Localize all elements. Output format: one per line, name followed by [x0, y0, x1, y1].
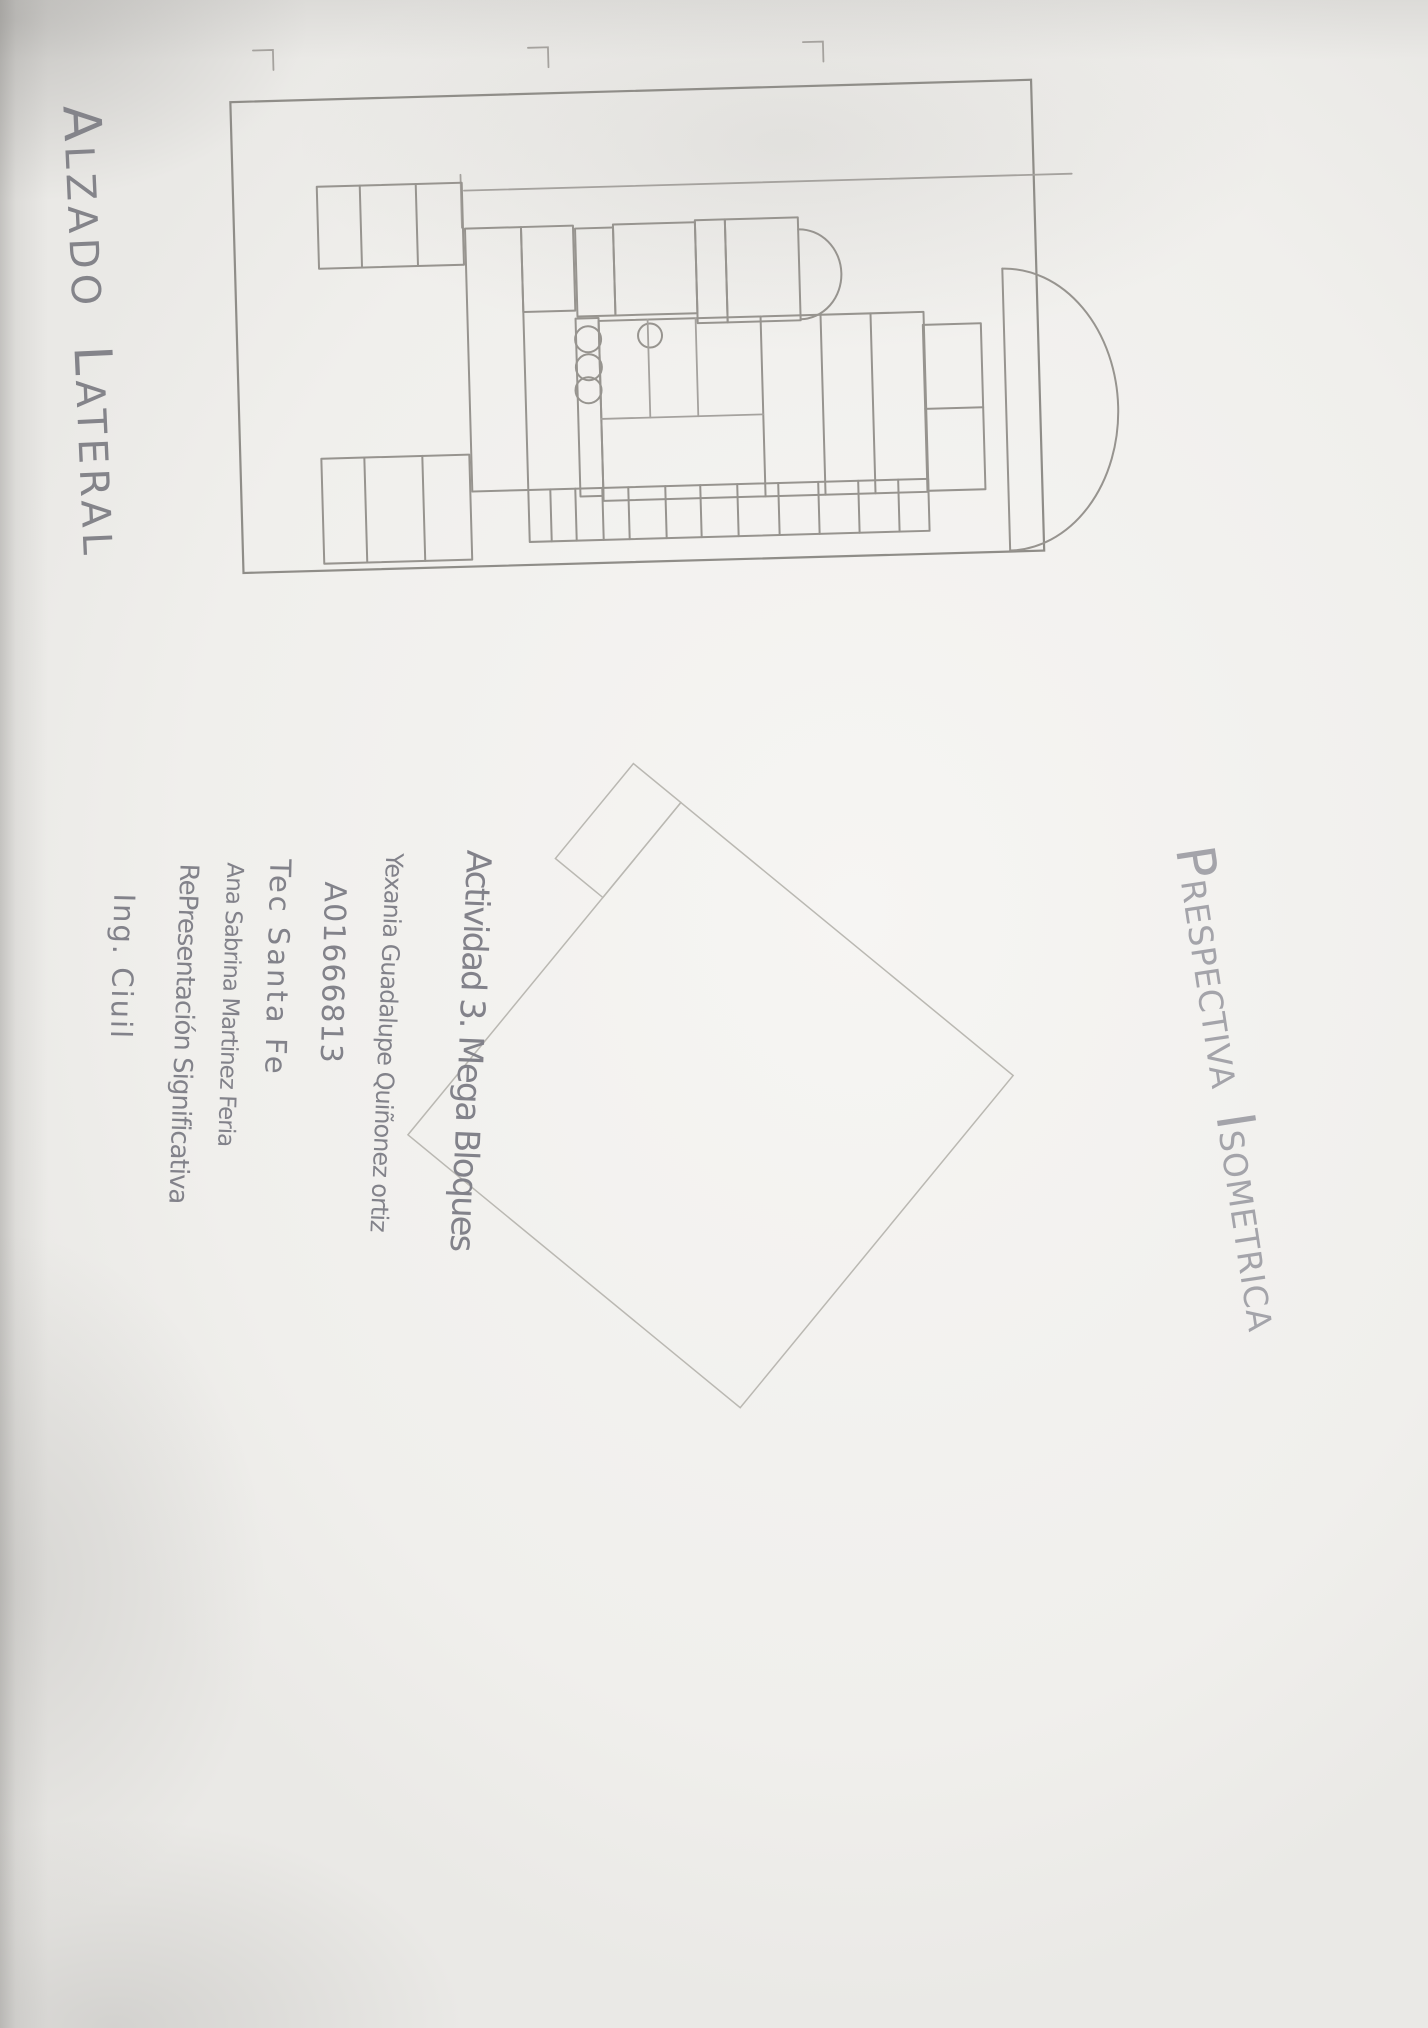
- dome-small: [798, 228, 842, 319]
- block: [575, 228, 615, 317]
- leg-left: [317, 183, 464, 269]
- plate-divider: [700, 485, 701, 537]
- block-divider: [648, 320, 651, 418]
- title-initial: A: [50, 104, 112, 147]
- plate-divider: [575, 489, 576, 541]
- info-line-campus: Tec Santa Fe: [258, 859, 297, 1077]
- photographed-paper-sheet: ALZADO LATERAL PRESPECTIVA ISOMETRICA Ac…: [0, 0, 1428, 2028]
- plate-divider: [778, 483, 779, 535]
- block: [528, 479, 929, 542]
- plate-divider: [858, 481, 859, 533]
- plate-divider: [898, 480, 899, 532]
- block-divider: [821, 315, 826, 495]
- block-divider: [364, 458, 367, 563]
- plate-divider: [737, 484, 738, 536]
- right-plate-column: [528, 479, 929, 542]
- info-line-studentid: A01666813: [313, 881, 352, 1064]
- block-divider: [696, 318, 699, 416]
- iso-grid-main: [408, 803, 1013, 1408]
- slab-block: [465, 227, 528, 491]
- dome-large: [1002, 266, 1122, 551]
- info-line-degree: Ing. Ciuil: [104, 893, 142, 1040]
- block-divider: [422, 456, 425, 561]
- center-column: [599, 312, 929, 501]
- stud-circle: [575, 326, 602, 353]
- plate-block: [695, 219, 728, 323]
- block: [613, 222, 698, 315]
- block-divider: [601, 414, 763, 419]
- block-divider: [416, 184, 418, 266]
- block: [725, 217, 801, 322]
- bridge-plate: [574, 316, 667, 496]
- block: [321, 455, 472, 564]
- tower-top: [921, 266, 1122, 553]
- block: [521, 226, 575, 312]
- block-divider: [761, 316, 766, 496]
- block-divider: [925, 407, 983, 409]
- block: [317, 183, 464, 269]
- block-divider: [360, 186, 362, 268]
- corner-mark: [253, 50, 274, 71]
- corner-marks: [253, 35, 824, 78]
- plate-divider: [665, 486, 666, 538]
- iso-grid-extension: [555, 764, 680, 898]
- title-initial: L: [61, 344, 122, 381]
- upright-page: ALZADO LATERAL PRESPECTIVA ISOMETRICA Ac…: [0, 0, 1428, 2028]
- page-content: ALZADO LATERAL PRESPECTIVA ISOMETRICA Ac…: [0, 0, 1428, 2028]
- construction-line: [464, 174, 1072, 191]
- left-stack: [521, 216, 843, 328]
- corner-mark: [528, 47, 549, 68]
- plate-divider: [550, 489, 551, 541]
- elevation-drawing: [230, 78, 1122, 573]
- corner-mark: [803, 42, 824, 63]
- leg-right: [321, 455, 472, 564]
- stud-circle: [638, 323, 663, 348]
- plate-divider: [628, 487, 629, 539]
- block-divider: [870, 313, 875, 493]
- dome-base: [1002, 269, 1010, 551]
- plate-divider: [818, 482, 819, 534]
